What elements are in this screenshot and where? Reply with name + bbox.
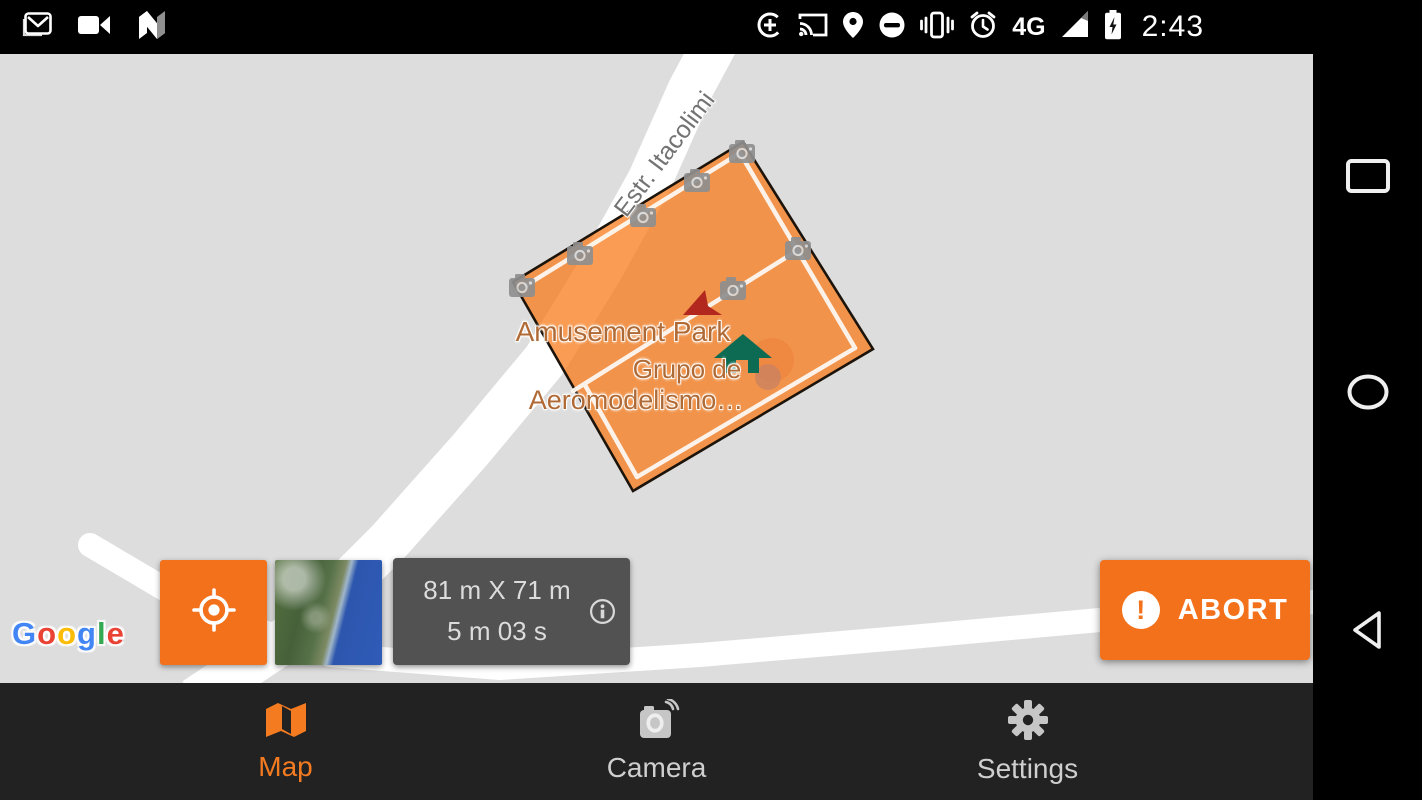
clock-label: 2:43	[1142, 10, 1204, 44]
back-button[interactable]	[1313, 592, 1422, 672]
info-icon[interactable]	[589, 598, 616, 630]
poi-label-amusement-park: Amusement Park	[468, 316, 778, 348]
alarm-icon	[968, 10, 998, 45]
abort-button-label: ABORT	[1178, 594, 1289, 627]
signal-strength-icon	[1060, 11, 1090, 44]
android-navigation-bar	[1313, 54, 1422, 800]
battery-charging-icon	[1104, 10, 1122, 45]
recents-square-icon	[1345, 158, 1391, 199]
mission-info-text: 81 m X 71 m 5 m 03 s	[411, 570, 583, 652]
gear-icon	[1006, 698, 1050, 747]
abort-mission-button[interactable]: ! ABORT	[1100, 560, 1310, 660]
tab-settings[interactable]: Settings	[968, 698, 1088, 785]
poi-label-club-line2: Aeromodelismo…	[486, 385, 786, 416]
google-logo-letter: l	[97, 616, 107, 651]
vibrate-icon	[920, 11, 954, 44]
back-triangle-icon	[1349, 609, 1387, 656]
map-canvas[interactable]: Estr. Itacolimi Amusement Park Grupo de …	[0, 54, 1313, 683]
my-location-button[interactable]	[160, 560, 267, 665]
mission-duration-label: 5 m 03 s	[411, 611, 583, 652]
crosshair-locate-icon	[192, 588, 236, 637]
screen-record-notification-icon	[78, 14, 112, 41]
system-status-icons: 4G 2:43	[756, 0, 1204, 54]
gmail-notification-icon	[22, 12, 52, 43]
do-not-disturb-icon	[878, 11, 906, 44]
poi-label-club-line1: Grupo de	[587, 354, 787, 385]
tab-camera-label: Camera	[607, 752, 707, 784]
notification-icons	[22, 0, 166, 54]
google-logo-letter: G	[12, 616, 37, 651]
map-type-satellite-thumbnail[interactable]	[275, 560, 382, 665]
home-button[interactable]	[1313, 354, 1422, 434]
mission-info-box[interactable]: 81 m X 71 m 5 m 03 s	[393, 558, 630, 665]
google-logo-letter: o	[57, 616, 77, 651]
google-logo-letter: o	[37, 616, 57, 651]
tab-map-label: Map	[258, 751, 312, 783]
map-icon	[263, 700, 309, 745]
tab-settings-label: Settings	[977, 753, 1078, 785]
recents-button[interactable]	[1313, 138, 1422, 218]
tab-camera[interactable]: Camera	[597, 699, 717, 784]
cast-icon	[798, 12, 828, 43]
camera-waypoint-icon	[729, 140, 755, 163]
status-bar: 4G 2:43	[0, 0, 1422, 54]
google-logo-letter: e	[107, 616, 125, 651]
location-icon	[842, 11, 864, 44]
data-saver-icon	[756, 11, 784, 44]
android-n-notification-icon	[138, 10, 166, 45]
warning-exclamation-icon: !	[1122, 591, 1160, 629]
network-type-label: 4G	[1012, 13, 1045, 42]
google-logo: Google	[12, 616, 125, 652]
camera-icon	[634, 699, 680, 746]
tab-map[interactable]: Map	[226, 700, 346, 783]
mission-dimensions-label: 81 m X 71 m	[411, 570, 583, 611]
google-logo-letter: g	[77, 616, 97, 651]
app-screen: 4G 2:43	[0, 0, 1422, 800]
home-circle-icon	[1346, 373, 1390, 416]
bottom-tab-bar: Map Camera	[0, 683, 1313, 800]
